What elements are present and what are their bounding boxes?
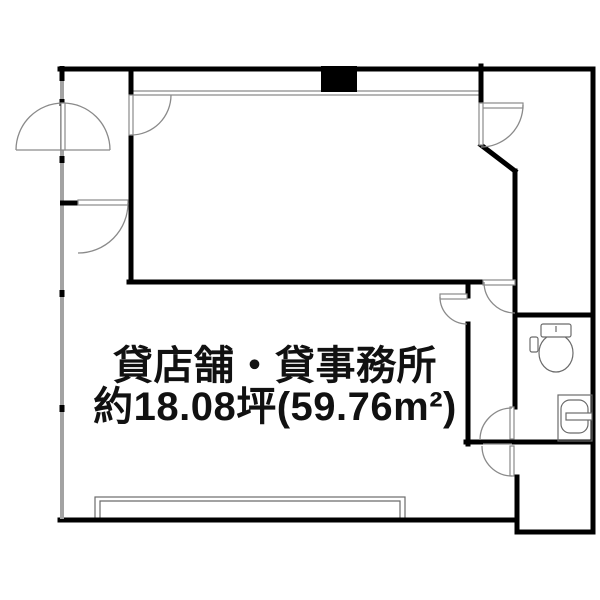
strip-west-door bbox=[440, 294, 467, 324]
door-swing-arc bbox=[481, 105, 523, 147]
toilet-icon bbox=[530, 324, 573, 372]
entrance-door bbox=[16, 103, 110, 150]
door-swing-arc bbox=[131, 95, 171, 135]
strip-north-door bbox=[483, 280, 515, 313]
door-leaf bbox=[483, 280, 515, 285]
door-leaf bbox=[510, 446, 514, 476]
door-leaf bbox=[61, 103, 65, 150]
door-leaf bbox=[481, 103, 523, 108]
door-leaf bbox=[479, 103, 483, 145]
pillar bbox=[321, 66, 357, 92]
floorplan: 貸店舗・貸事務所 約18.08坪(59.76m²) bbox=[0, 0, 600, 600]
door-leaf bbox=[78, 200, 128, 205]
left-lower-door bbox=[78, 200, 128, 253]
corner-room-door bbox=[482, 444, 514, 476]
window-band bbox=[133, 91, 479, 95]
door-leaf bbox=[510, 407, 514, 439]
sink-faucet bbox=[566, 413, 592, 420]
corridor-door bbox=[479, 103, 523, 147]
toilet-bowl bbox=[539, 334, 573, 372]
door-leaf bbox=[129, 95, 133, 135]
inner-room-west-door bbox=[129, 95, 171, 135]
toilet-lever bbox=[530, 337, 538, 352]
sink-icon bbox=[558, 395, 592, 441]
door-swing-arc bbox=[440, 297, 467, 324]
door-swing-arc bbox=[484, 282, 515, 313]
room-label: 貸店舗・貸事務所 bbox=[55, 346, 495, 387]
counter-outline bbox=[95, 497, 405, 519]
room-label-block: 貸店舗・貸事務所 約18.08坪(59.76m²) bbox=[55, 346, 495, 428]
inner-walls bbox=[129, 66, 593, 532]
area-label: 約18.08坪(59.76m²) bbox=[55, 387, 495, 428]
floorplan-drawing bbox=[0, 0, 600, 600]
counter bbox=[95, 497, 405, 519]
door-swing-arc bbox=[78, 203, 128, 253]
door-swing-arc bbox=[482, 446, 512, 476]
diagonal-wall bbox=[481, 145, 515, 171]
door-leaf bbox=[440, 294, 467, 299]
